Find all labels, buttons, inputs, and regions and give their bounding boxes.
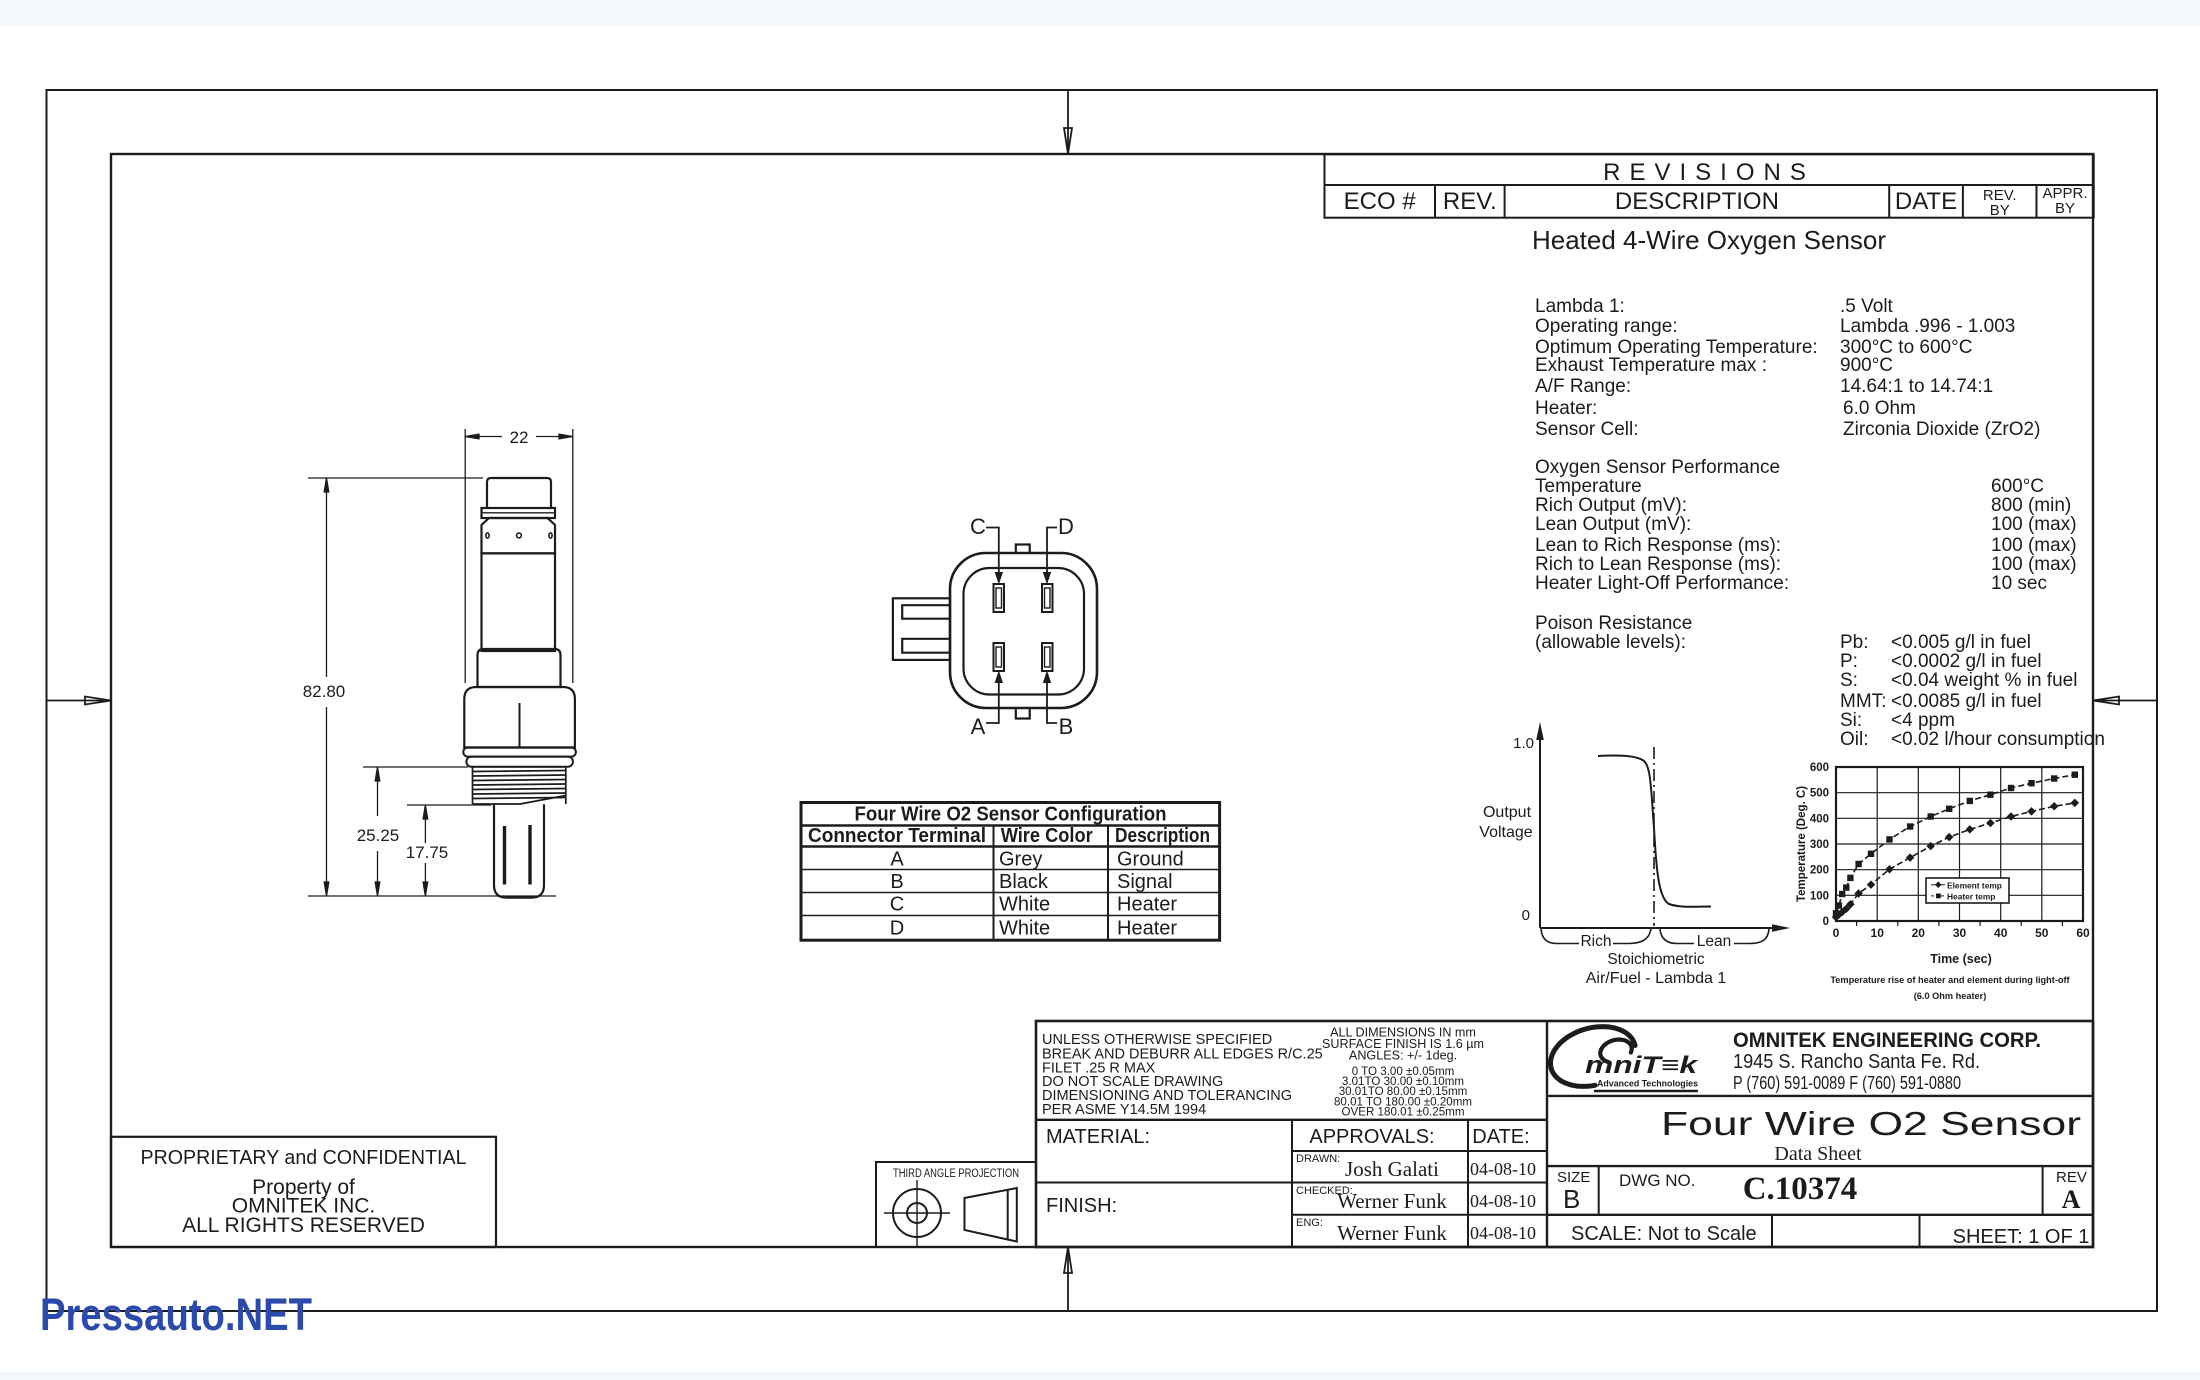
svg-text:B: B (1563, 1184, 1580, 1214)
svg-text:50: 50 (2035, 926, 2049, 940)
svg-text:PROPRIETARY and CONFIDENTIAL: PROPRIETARY and CONFIDENTIAL (141, 1146, 467, 1169)
svg-text:Werner Funk: Werner Funk (1337, 1221, 1447, 1245)
svg-text:APPROVALS:: APPROVALS: (1309, 1126, 1434, 1148)
svg-text:DRAWN:: DRAWN: (1296, 1153, 1340, 1165)
svg-text:Heater: Heater (1117, 894, 1177, 916)
svg-text:Rich to Lean Response (ms):: Rich to Lean Response (ms): (1535, 554, 1781, 575)
svg-text:S:: S: (1840, 670, 1858, 691)
svg-text:ANGLES: +/- 1deg.: ANGLES: +/- 1deg. (1349, 1048, 1457, 1062)
svg-text:600°C: 600°C (1991, 476, 2044, 497)
svg-text:Signal: Signal (1117, 871, 1173, 893)
svg-text:1.0: 1.0 (1513, 735, 1534, 752)
svg-text:Temperature (Deg. C): Temperature (Deg. C) (1796, 786, 1808, 902)
svg-text:MMT:: MMT: (1840, 691, 1886, 712)
svg-text:(6.0 Ohm heater): (6.0 Ohm heater) (1914, 991, 1987, 1001)
svg-text:<4 ppm: <4 ppm (1891, 710, 1955, 731)
svg-text:DESCRIPTION: DESCRIPTION (1615, 188, 1779, 215)
svg-text:17.75: 17.75 (406, 843, 449, 862)
svg-text:600: 600 (1810, 762, 1829, 774)
svg-text:Exhaust Temperature max :: Exhaust Temperature max : (1535, 355, 1767, 376)
svg-text:100 (max): 100 (max) (1991, 535, 2077, 556)
svg-text:Connector Terminal: Connector Terminal (808, 825, 986, 847)
svg-text:0: 0 (1522, 907, 1530, 924)
svg-text:500: 500 (1810, 788, 1829, 800)
svg-text:SCALE: Not to Scale: SCALE: Not to Scale (1571, 1223, 1757, 1245)
svg-text:<0.02 l/hour consumption: <0.02 l/hour consumption (1891, 729, 2105, 750)
svg-text:Sensor Cell:: Sensor Cell: (1535, 419, 1639, 440)
svg-text:Data Sheet: Data Sheet (1774, 1143, 1862, 1165)
svg-text:Pb:: Pb: (1840, 632, 1869, 653)
svg-text:White: White (999, 894, 1050, 916)
svg-text:ENG:: ENG: (1296, 1217, 1323, 1229)
svg-text:Heater Light-Off Performance:: Heater Light-Off Performance: (1535, 573, 1789, 594)
svg-text:A/F Range:: A/F Range: (1535, 376, 1631, 397)
svg-text:SHEET: 1 OF 1: SHEET: 1 OF 1 (1953, 1226, 2090, 1248)
svg-text:Lean Output (mV):: Lean Output (mV): (1535, 514, 1691, 535)
svg-text:10: 10 (1871, 926, 1885, 940)
svg-text:D: D (890, 918, 904, 940)
svg-text:40: 40 (1994, 926, 2008, 940)
svg-text:(allowable levels):: (allowable levels): (1535, 632, 1686, 653)
svg-text:25.25: 25.25 (357, 826, 400, 845)
svg-text:Temperature: Temperature (1535, 476, 1642, 497)
svg-text:BY: BY (1990, 202, 2010, 219)
svg-text:Werner Funk: Werner Funk (1337, 1189, 1447, 1213)
svg-text:PER ASME Y14.5M 1994: PER ASME Y14.5M 1994 (1042, 1102, 1206, 1118)
svg-text:Element temp: Element temp (1947, 881, 2002, 891)
svg-text:Description: Description (1115, 825, 1210, 847)
svg-text:DATE:: DATE: (1472, 1126, 1529, 1148)
svg-text:<0.0002 g/l in fuel: <0.0002 g/l in fuel (1891, 651, 2042, 672)
svg-text:0: 0 (1833, 926, 1840, 940)
svg-text:Heater: Heater (1117, 918, 1177, 940)
svg-text:200: 200 (1810, 865, 1829, 877)
svg-text:Rich: Rich (1580, 933, 1611, 950)
svg-text:White: White (999, 918, 1050, 940)
svg-text:04-08-10: 04-08-10 (1470, 1223, 1536, 1243)
svg-text:P:: P: (1840, 651, 1858, 672)
svg-text:Output: Output (1483, 804, 1532, 821)
svg-text:800 (min): 800 (min) (1991, 495, 2071, 516)
svg-text:04-08-10: 04-08-10 (1470, 1159, 1536, 1179)
svg-text:Voltage: Voltage (1479, 824, 1532, 841)
svg-text:mniT≡k: mniT≡k (1585, 1052, 1699, 1079)
svg-text:Oxygen Sensor Performance: Oxygen Sensor Performance (1535, 457, 1780, 478)
svg-text:Rich Output (mV):: Rich Output (mV): (1535, 495, 1687, 516)
svg-text:Lean: Lean (1697, 933, 1731, 950)
svg-text:Zirconia Dioxide (ZrO2): Zirconia Dioxide (ZrO2) (1843, 419, 2040, 440)
svg-text:Stoichiometric: Stoichiometric (1607, 951, 1705, 968)
svg-text:1945 S. Rancho Santa Fe. Rd.: 1945 S. Rancho Santa Fe. Rd. (1733, 1051, 1980, 1073)
svg-text:Josh Galati: Josh Galati (1345, 1157, 1439, 1181)
svg-text:OMNITEK ENGINEERING CORP.: OMNITEK ENGINEERING CORP. (1733, 1029, 2041, 1052)
svg-text:Four Wire O2 Sensor: Four Wire O2 Sensor (1661, 1105, 2081, 1142)
svg-text:Ground: Ground (1117, 849, 1184, 871)
svg-text:REV: REV (2056, 1169, 2087, 1186)
svg-text:Heated 4-Wire Oxygen Sensor: Heated 4-Wire Oxygen Sensor (1532, 225, 1886, 255)
svg-text:THIRD ANGLE PROJECTION: THIRD ANGLE PROJECTION (893, 1168, 1019, 1180)
svg-text:30: 30 (1953, 926, 1967, 940)
svg-text:82.80: 82.80 (303, 682, 346, 701)
svg-text:B: B (1059, 714, 1074, 739)
svg-text:10 sec: 10 sec (1991, 573, 2047, 594)
svg-text:04-08-10: 04-08-10 (1470, 1191, 1536, 1211)
svg-text:Pressauto.NET: Pressauto.NET (40, 1289, 312, 1340)
svg-text:Poison Resistance: Poison Resistance (1535, 613, 1692, 634)
svg-text:Lambda .996 - 1.003: Lambda .996 - 1.003 (1840, 316, 2015, 337)
svg-text:100 (max): 100 (max) (1991, 554, 2077, 575)
svg-text:Four Wire O2 Sensor Configurat: Four Wire O2 Sensor Configuration (855, 804, 1167, 826)
svg-text:<0.005 g/l in fuel: <0.005 g/l in fuel (1891, 632, 2031, 653)
svg-text:Temperature rise of heater and: Temperature rise of heater and element d… (1830, 975, 2070, 985)
svg-text:Si:: Si: (1840, 710, 1862, 731)
svg-text:22: 22 (510, 428, 529, 447)
svg-text:60: 60 (2076, 926, 2090, 940)
svg-text:Grey: Grey (999, 849, 1042, 871)
svg-text:ECO #: ECO # (1344, 188, 1417, 215)
svg-text:Oil:: Oil: (1840, 729, 1869, 750)
svg-text:ALL RIGHTS RESERVED: ALL RIGHTS RESERVED (182, 1214, 425, 1237)
svg-text:A: A (890, 849, 904, 871)
svg-text:20: 20 (1912, 926, 1926, 940)
svg-text:6.0 Ohm: 6.0 Ohm (1843, 398, 1916, 419)
svg-text:DATE: DATE (1895, 188, 1957, 215)
svg-text:Black: Black (999, 871, 1049, 893)
svg-text:400: 400 (1810, 813, 1829, 825)
svg-text:C: C (970, 514, 986, 539)
svg-text:.5 Volt: .5 Volt (1840, 296, 1894, 317)
svg-text:MATERIAL:: MATERIAL: (1046, 1126, 1150, 1148)
svg-text:P (760) 591-0089 F (760) 591-: P (760) 591-0089 F (760) 591-0880 (1733, 1073, 1961, 1093)
svg-text:300: 300 (1810, 839, 1829, 851)
svg-text:Time (sec): Time (sec) (1930, 952, 1992, 966)
svg-text:<0.04 weight % in fuel: <0.04 weight % in fuel (1891, 670, 2077, 691)
svg-text:DWG NO.: DWG NO. (1619, 1171, 1696, 1190)
svg-text:A: A (2062, 1185, 2081, 1214)
svg-text:Lambda 1:: Lambda 1: (1535, 296, 1625, 317)
svg-text:OVER 180.01 ±0.25mm: OVER 180.01 ±0.25mm (1341, 1106, 1464, 1119)
svg-text:0: 0 (1823, 916, 1829, 928)
svg-text:FINISH:: FINISH: (1046, 1195, 1117, 1217)
svg-text:Wire Color: Wire Color (1001, 825, 1093, 847)
svg-text:B: B (890, 871, 903, 893)
svg-text:REVISIONS: REVISIONS (1603, 159, 1815, 186)
svg-text:REV.: REV. (1443, 188, 1497, 215)
svg-text:BY: BY (2055, 200, 2075, 217)
svg-text:C.10374: C.10374 (1743, 1171, 1858, 1207)
svg-text:A: A (971, 714, 986, 739)
svg-text:Heater:: Heater: (1535, 398, 1597, 419)
svg-text:100: 100 (1810, 890, 1829, 902)
svg-text:C: C (890, 894, 904, 916)
svg-text:100 (max): 100 (max) (1991, 514, 2077, 535)
svg-text:<0.0085 g/l in fuel: <0.0085 g/l in fuel (1891, 691, 2042, 712)
svg-text:Operating range:: Operating range: (1535, 316, 1678, 337)
svg-text:Heater temp: Heater temp (1947, 892, 1995, 902)
svg-text:Air/Fuel - Lambda 1: Air/Fuel - Lambda 1 (1586, 970, 1727, 987)
svg-text:D: D (1058, 514, 1074, 539)
svg-text:900°C: 900°C (1840, 355, 1893, 376)
svg-text:14.64:1 to 14.74:1: 14.64:1 to 14.74:1 (1840, 376, 1993, 397)
svg-text:Lean to Rich Response (ms):: Lean to Rich Response (ms): (1535, 535, 1781, 556)
svg-text:Advanced Technologies: Advanced Technologies (1597, 1079, 1698, 1090)
